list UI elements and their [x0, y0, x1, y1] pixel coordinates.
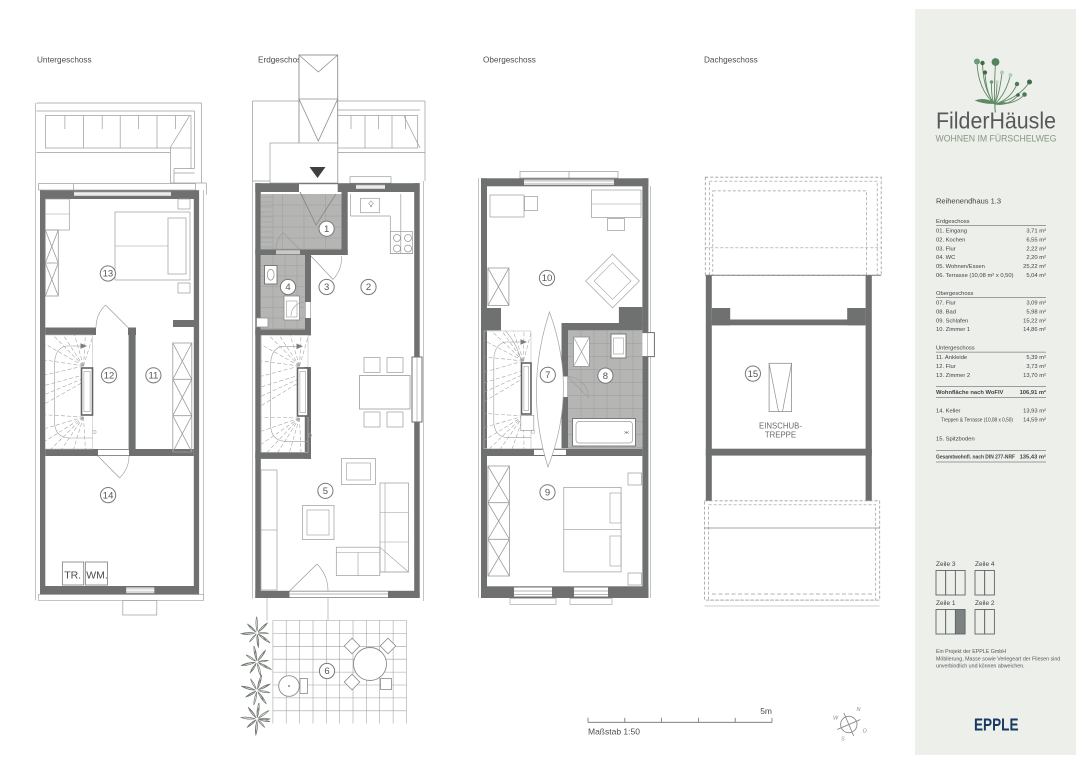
svg-text:14,59 m²: 14,59 m² — [1023, 418, 1046, 424]
svg-text:04. WC: 04. WC — [936, 255, 955, 261]
svg-text:14. Keller: 14. Keller — [936, 409, 961, 415]
svg-text:12: 12 — [104, 371, 115, 382]
svg-text:1: 1 — [324, 224, 329, 235]
svg-text:TR.: TR. — [64, 570, 81, 582]
svg-text:07. Flur: 07. Flur — [936, 301, 956, 307]
svg-text:EINSCHUB-: EINSCHUB- — [759, 422, 802, 431]
svg-text:09. Schlafen: 09. Schlafen — [936, 319, 968, 325]
svg-text:5,98 m²: 5,98 m² — [1026, 310, 1046, 316]
svg-text:02. Kochen: 02. Kochen — [936, 238, 965, 244]
svg-text:01. Eingang: 01. Eingang — [936, 229, 967, 235]
svg-text:14,86 m²: 14,86 m² — [1023, 327, 1046, 333]
svg-text:Wohnfläche nach WoFlV: Wohnfläche nach WoFlV — [936, 390, 1004, 396]
svg-text:13,70 m²: 13,70 m² — [1023, 373, 1046, 379]
svg-text:8: 8 — [603, 371, 608, 382]
svg-text:08. Bad: 08. Bad — [936, 310, 956, 316]
svg-text:9: 9 — [545, 488, 550, 499]
svg-text:Möblierung, Masse sowie Verleg: Möblierung, Masse sowie Verlegeart der F… — [936, 657, 1060, 663]
svg-text:13: 13 — [103, 269, 114, 280]
svg-text:O: O — [863, 729, 868, 735]
svg-text:15,22 m²: 15,22 m² — [1023, 319, 1046, 325]
svg-text:Maßstab 1:50: Maßstab 1:50 — [588, 727, 640, 737]
svg-text:2,20 m²: 2,20 m² — [1026, 255, 1046, 261]
svg-text:15: 15 — [748, 369, 759, 380]
svg-text:106,91 m²: 106,91 m² — [1020, 389, 1046, 396]
svg-text:Zeile 4: Zeile 4 — [975, 561, 995, 568]
svg-text:2,22 m²: 2,22 m² — [1026, 247, 1046, 253]
svg-text:FilderHäusle: FilderHäusle — [936, 108, 1056, 134]
svg-text:12. Flur: 12. Flur — [936, 364, 956, 370]
svg-text:135,43 m²: 135,43 m² — [1020, 454, 1046, 461]
svg-text:10: 10 — [542, 273, 553, 284]
svg-text:13. Zimmer 2: 13. Zimmer 2 — [936, 373, 970, 379]
svg-text:3,71 m²: 3,71 m² — [1026, 229, 1046, 235]
svg-text:Zeile 1: Zeile 1 — [936, 600, 956, 607]
svg-text:6,55 m²: 6,55 m² — [1026, 238, 1046, 244]
svg-text:TREPPE: TREPPE — [765, 431, 796, 440]
svg-text:Ein Projekt der EPPLE GmbH: Ein Projekt der EPPLE GmbH — [936, 649, 1006, 655]
svg-text:unverbindlich und können abwei: unverbindlich und können abweichen. — [936, 664, 1025, 670]
svg-text:Obergeschoss: Obergeschoss — [483, 56, 536, 65]
svg-text:13,93 m²: 13,93 m² — [1023, 409, 1046, 415]
svg-text:5,04 m²: 5,04 m² — [1026, 273, 1046, 279]
svg-text:WOHNEN IM FÜRSCHELWEG: WOHNEN IM FÜRSCHELWEG — [936, 134, 1057, 144]
svg-text:2: 2 — [366, 282, 371, 293]
svg-text:Erdgeschoss: Erdgeschoss — [936, 219, 970, 225]
svg-text:N: N — [857, 707, 861, 713]
svg-text:4: 4 — [285, 282, 290, 293]
svg-text:7: 7 — [545, 370, 550, 381]
svg-text:Gesamtwohnfl. nach DIN 277-NRF: Gesamtwohnfl. nach DIN 277-NRF — [936, 455, 1015, 461]
svg-text:S: S — [841, 737, 845, 743]
svg-text:6: 6 — [324, 666, 329, 677]
svg-text:Dachgeschoss: Dachgeschoss — [704, 56, 758, 65]
svg-text:EPPLE: EPPLE — [974, 715, 1019, 735]
svg-text:3: 3 — [324, 282, 329, 293]
svg-text:Obergeschoss: Obergeschoss — [936, 291, 973, 297]
svg-text:11: 11 — [148, 371, 158, 382]
svg-text:Untergeschoss: Untergeschoss — [37, 56, 92, 65]
svg-text:5: 5 — [323, 486, 328, 497]
svg-text:5m: 5m — [760, 706, 772, 716]
svg-text:15. Spitzboden: 15. Spitzboden — [936, 437, 975, 443]
svg-text:06. Terrasse (10,08 m² x 0,50): 06. Terrasse (10,08 m² x 0,50) — [936, 273, 1014, 279]
svg-text:Untergeschoss: Untergeschoss — [936, 346, 975, 352]
svg-text:14: 14 — [103, 490, 114, 501]
svg-text:Zeile 2: Zeile 2 — [975, 600, 995, 607]
svg-text:03. Flur: 03. Flur — [936, 247, 956, 253]
svg-text:5,39 m²: 5,39 m² — [1026, 355, 1046, 361]
svg-text:11. Ankleide: 11. Ankleide — [936, 355, 967, 361]
svg-text:Erdgeschoss: Erdgeschoss — [258, 56, 305, 65]
svg-text:Reihenendhaus 1.3: Reihenendhaus 1.3 — [936, 197, 1001, 206]
svg-text:3,73 m²: 3,73 m² — [1026, 364, 1046, 370]
svg-text:05. Wohnen/Essen: 05. Wohnen/Essen — [936, 264, 985, 270]
svg-text:W: W — [833, 716, 839, 722]
svg-text:Zeile 3: Zeile 3 — [936, 561, 956, 568]
svg-text:WM.: WM. — [86, 570, 108, 582]
svg-text:10. Zimmer 1: 10. Zimmer 1 — [936, 327, 970, 333]
svg-text:25,22 m²: 25,22 m² — [1023, 264, 1046, 270]
svg-text:Treppen & Terrasse (10,08 x 0,: Treppen & Terrasse (10,08 x 0,50) — [941, 418, 1013, 424]
svg-text:3,09 m²: 3,09 m² — [1026, 301, 1046, 307]
